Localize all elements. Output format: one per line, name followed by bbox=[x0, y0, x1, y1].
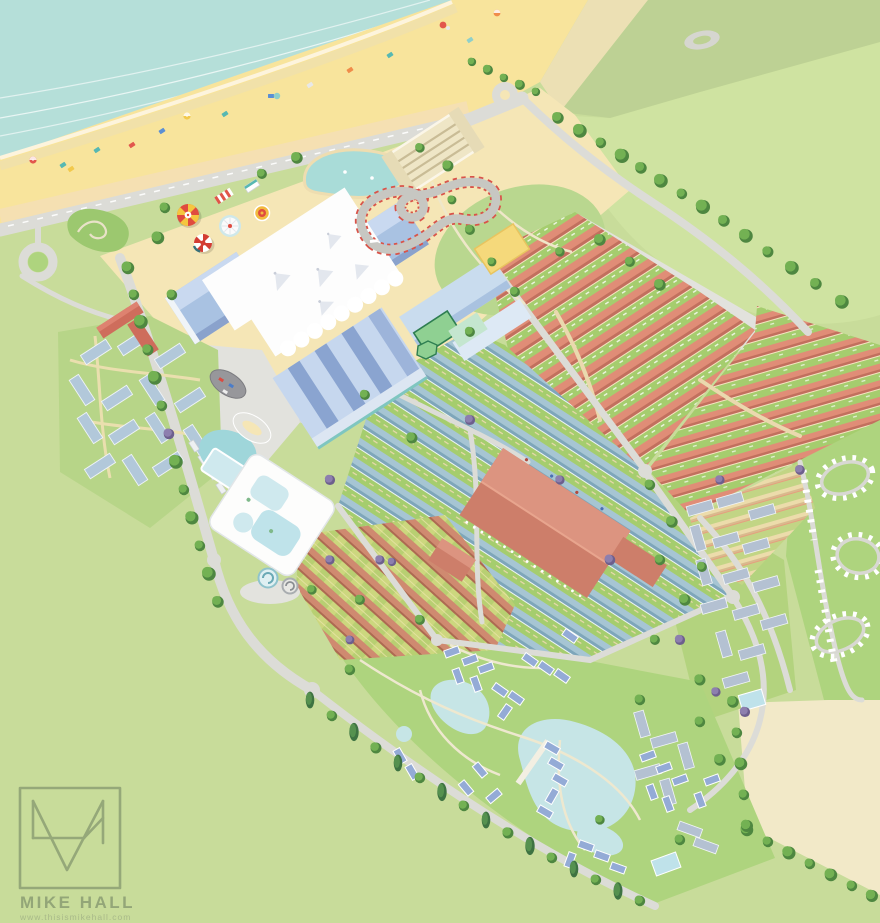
artist-website: www.thisismikehall.com bbox=[19, 912, 131, 922]
promenade-loop bbox=[492, 82, 518, 108]
map-canvas: MIKE HALL www.thisismikehall.com bbox=[0, 0, 880, 923]
roundabout bbox=[23, 247, 53, 277]
disc-ride bbox=[255, 206, 270, 221]
canopy-ride bbox=[219, 215, 241, 237]
artist-name: MIKE HALL bbox=[20, 893, 135, 912]
resort-map-illustration: MIKE HALL www.thisismikehall.com bbox=[0, 0, 880, 923]
